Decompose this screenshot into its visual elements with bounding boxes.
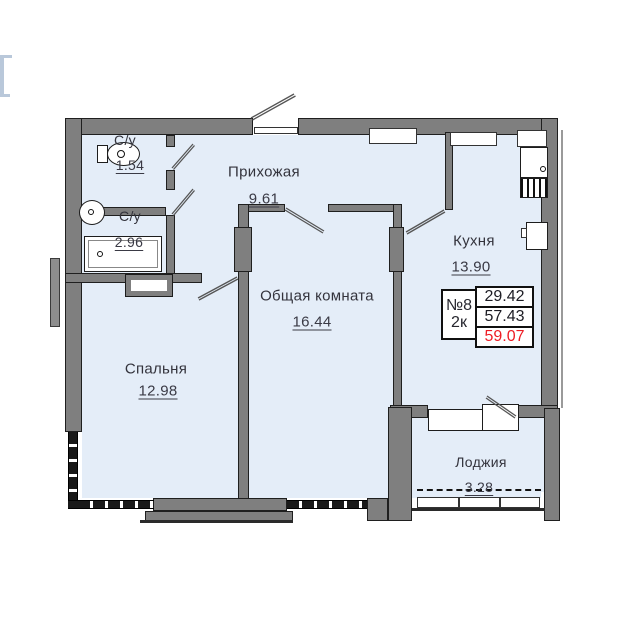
room-area-bath1: 1.54	[116, 157, 144, 173]
loggia-glazing-panel	[459, 497, 500, 508]
kitchen-cabinet	[450, 132, 497, 146]
balcony-door	[482, 404, 519, 431]
vent-duct	[126, 275, 172, 296]
room-label-bath1: С/у	[114, 132, 136, 148]
wall-loggia-left	[388, 407, 412, 521]
entrance-threshold	[254, 127, 298, 134]
room-area-kitchen: 13.90	[451, 259, 490, 276]
bedroom-window-bottom	[78, 500, 154, 509]
room-label-loggia: Лоджия	[455, 454, 506, 470]
wall-loggia-right	[544, 408, 560, 521]
room-area-living: 16.44	[292, 314, 331, 331]
loggia-glazing-panel	[500, 497, 540, 508]
stove-icon	[520, 178, 548, 198]
unit-type: 2к	[451, 315, 467, 332]
wall-top-left	[65, 118, 253, 135]
room-area-hall: 9.61	[249, 191, 279, 208]
loggia-glazing-panel	[417, 497, 459, 508]
room-label-living: Общая комната	[260, 288, 374, 305]
wall-bath-front-a	[166, 135, 175, 147]
balcony-window	[428, 409, 483, 431]
room-label-hall: Прихожая	[228, 164, 300, 181]
unit-id-cell: №8 2к	[441, 289, 477, 340]
washbasin-drain	[88, 209, 94, 215]
corner-mark	[0, 94, 10, 97]
floor-plan: С/у 1.54 С/у 2.96 Прихожая 9.61 Кухня 13…	[0, 0, 621, 621]
fridge-handle	[521, 228, 527, 238]
bathtub-drain	[97, 251, 103, 257]
unit-area-main: 57.43	[475, 306, 534, 328]
corner-mark	[0, 55, 4, 97]
room-label-kitchen: Кухня	[453, 233, 495, 250]
outer-edge-line	[140, 520, 293, 523]
unit-info-table: №8 2к 29.42 57.43 59.07	[441, 286, 534, 343]
corner-mark	[0, 55, 12, 58]
wall-bath-front-c	[166, 215, 175, 275]
room-label-bedroom: Спальня	[125, 361, 187, 378]
room-area-bedroom: 12.98	[138, 383, 177, 400]
hall-wardrobe	[369, 128, 417, 144]
outer-pier-left	[50, 258, 60, 327]
pier-living-left	[234, 227, 252, 272]
living-window-bottom	[287, 500, 367, 509]
wall-loggia-bottom-left	[367, 498, 388, 521]
unit-number: №8	[446, 298, 472, 315]
wall-bottom-mid	[153, 498, 287, 511]
room-area-loggia: 3.28	[465, 479, 493, 495]
pier-living-right	[389, 227, 404, 272]
wall-bath-front-b	[166, 170, 175, 190]
unit-area-cells: 29.42 57.43 59.07	[475, 286, 534, 343]
right-facade-line	[561, 130, 563, 408]
kitchen-sink-icon	[520, 147, 548, 178]
room-label-bath2: С/у	[119, 208, 141, 224]
wall-living-top-b	[328, 204, 402, 212]
bedroom-window-left	[68, 432, 78, 500]
fridge-icon	[526, 222, 548, 250]
kitchen-cabinet	[517, 130, 547, 147]
kitchen-faucet	[540, 166, 546, 172]
room-area-bath2: 2.96	[115, 234, 143, 250]
unit-area-living: 29.42	[475, 286, 534, 308]
loggia-base-line	[412, 508, 545, 511]
unit-area-total: 59.07	[475, 326, 534, 348]
